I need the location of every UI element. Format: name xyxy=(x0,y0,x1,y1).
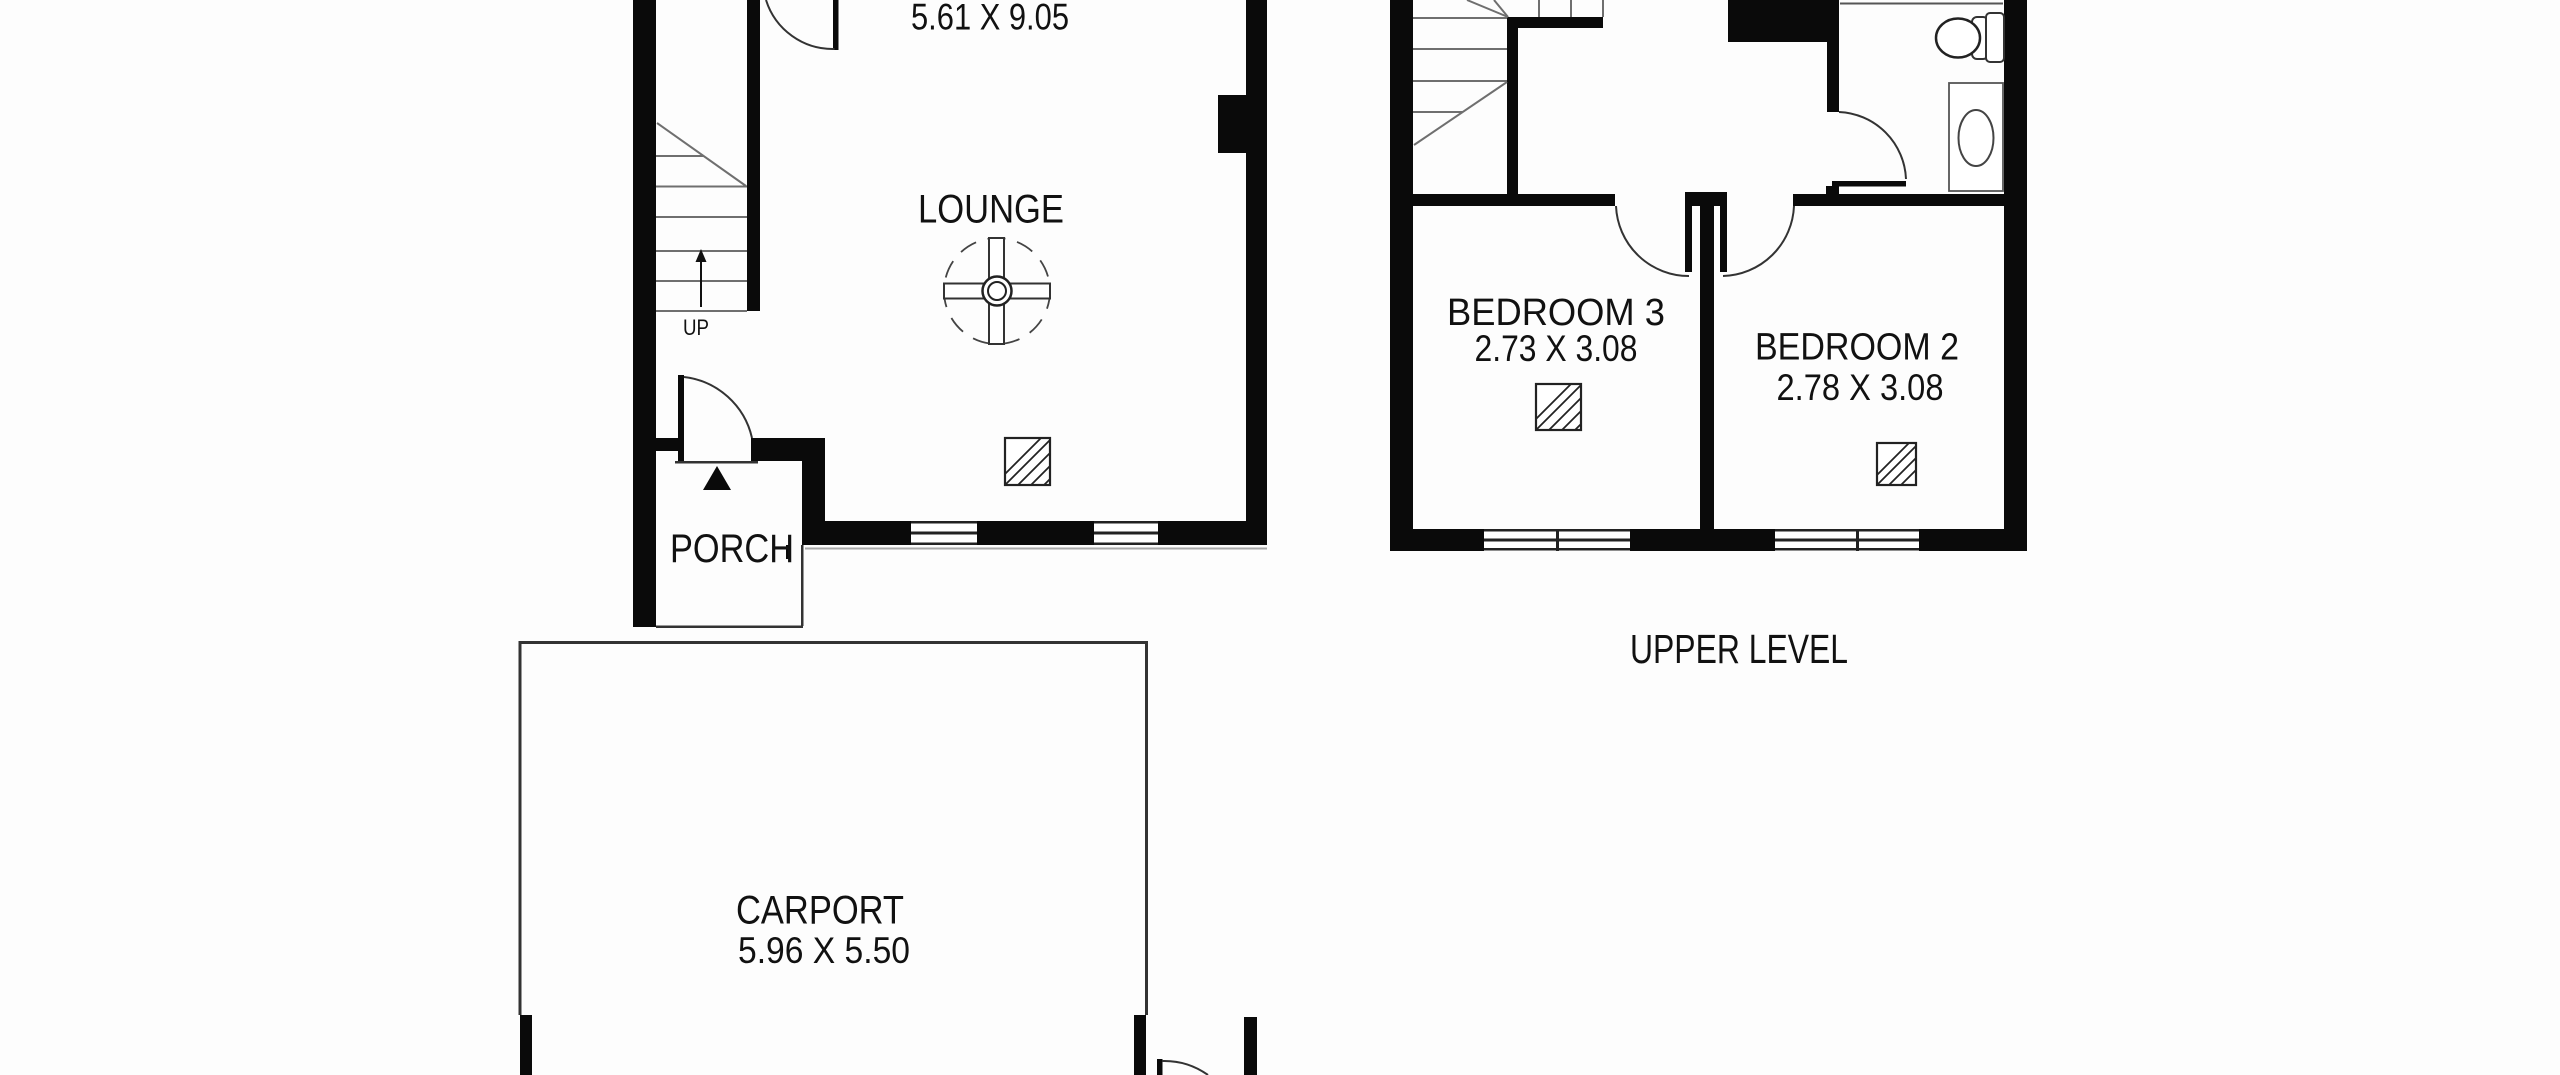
svg-text:UP: UP xyxy=(683,315,709,340)
svg-text:LOUNGE: LOUNGE xyxy=(918,188,1064,232)
svg-text:UPPER LEVEL: UPPER LEVEL xyxy=(1630,626,1848,672)
svg-text:5.96 X 5.50: 5.96 X 5.50 xyxy=(738,930,910,971)
svg-text:2.78 X 3.08: 2.78 X 3.08 xyxy=(1777,367,1944,408)
svg-text:5.61 X 9.05: 5.61 X 9.05 xyxy=(911,0,1069,38)
svg-text:2.73 X 3.08: 2.73 X 3.08 xyxy=(1475,328,1638,369)
svg-text:PORCH: PORCH xyxy=(670,527,794,571)
svg-text:CARPORT: CARPORT xyxy=(736,889,904,933)
svg-text:BEDROOM 2: BEDROOM 2 xyxy=(1755,327,1959,369)
